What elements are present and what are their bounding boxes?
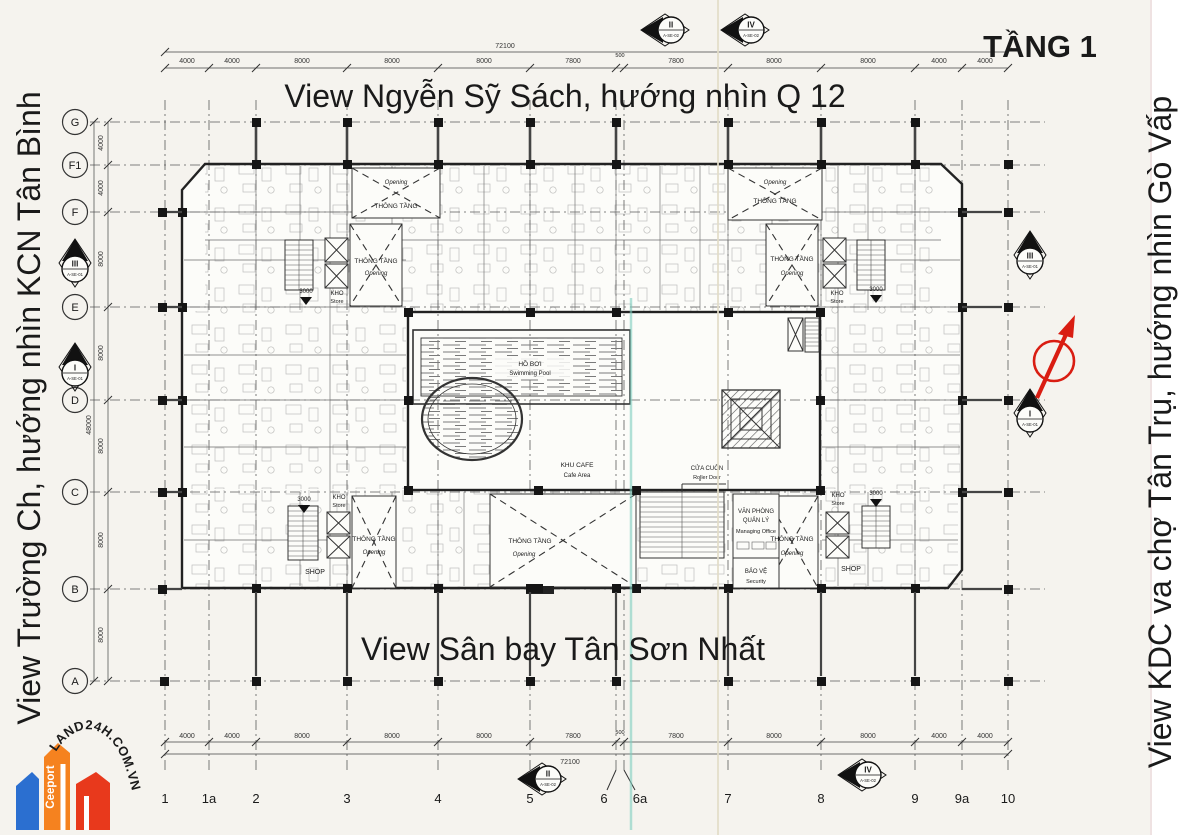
store-label-en: Store — [332, 503, 345, 509]
void-label-en: Opening — [513, 552, 536, 558]
dim-label: 8000 — [98, 345, 105, 361]
office-label-vi2: QUẢN LÝ — [743, 517, 769, 524]
void-label-en: Opening — [385, 180, 408, 186]
dim-label: 8000 — [98, 627, 105, 643]
marker-number: IV — [747, 21, 755, 30]
dim-label: 4000 — [224, 733, 240, 740]
dim-label: 4000 — [179, 733, 195, 740]
marker-code: A-SE-01 — [1022, 264, 1038, 269]
dim-label: 4000 — [977, 733, 993, 740]
grid-row-label: D — [71, 395, 79, 407]
total-width-dim: 72100 — [560, 759, 580, 766]
level-dim-label: 3000 — [869, 491, 883, 497]
annotation-top: View Ngyễn Sỹ Sách, hướng nhìn Q 12 — [284, 78, 845, 114]
cafe-label-en: Cafe Area — [564, 473, 591, 479]
grid-row-label: B — [71, 584, 78, 596]
grid-row-label: F1 — [69, 160, 82, 172]
store-label-en: Store — [330, 299, 343, 305]
logo-red-slot — [84, 796, 89, 830]
marker-number: III — [1027, 252, 1034, 261]
store-label-en: Store — [831, 501, 844, 507]
dim-label: 4000 — [179, 58, 195, 65]
void-label-en: Opening — [764, 180, 787, 186]
marker-code: A-SE-01 — [67, 376, 83, 381]
void-label-en: Opening — [781, 551, 804, 557]
office-label-vi1: VĂN PHÒNG — [738, 508, 774, 515]
grid-col-label: 8 — [817, 791, 824, 806]
marker-number: II — [669, 21, 673, 30]
dim-label: 500 — [615, 730, 624, 736]
dim-label: 4000 — [931, 58, 947, 65]
dim-label: 8000 — [860, 58, 876, 65]
dim-label: 500 — [615, 53, 624, 59]
skylight-feature — [722, 390, 780, 448]
dim-label: 8000 — [384, 733, 400, 740]
grid-col-label: 5 — [526, 791, 533, 806]
security-label-vi: BẢO VỆ — [745, 567, 767, 575]
marker-code: A-SE-02 — [743, 33, 759, 38]
pool-label-en: Swimming Pool — [509, 371, 550, 377]
marker-code: A-SE-01 — [67, 272, 83, 277]
grid-row-label: E — [71, 302, 78, 314]
level-dim-label: 3000 — [297, 497, 311, 503]
marker-code: A-SE-01 — [1022, 422, 1038, 427]
dim-label: 8000 — [476, 733, 492, 740]
dim-label: 8000 — [384, 58, 400, 65]
grid-col-label: 1 — [161, 791, 168, 806]
grid-col-label: 3 — [343, 791, 350, 806]
floor-plan-page: 72100 4000 4000 8000 8000 8000 7800 500 … — [0, 0, 1200, 835]
cafe-label-vi: KHU CAFE — [561, 462, 595, 469]
annotation-bottom: View Sân bay Tân Sơn Nhất — [361, 631, 765, 667]
store-label-vi: KHO — [330, 291, 343, 297]
grid-col-label: 4 — [434, 791, 441, 806]
marker-code: A-SE-02 — [540, 782, 556, 787]
grid-row-label: A — [71, 676, 79, 688]
level-dim-label: 3000 — [869, 287, 883, 293]
dim-label: 8000 — [98, 438, 105, 454]
grid-row-label: F — [72, 207, 79, 219]
marker-number: III — [72, 260, 79, 269]
grid-col-label: 9 — [911, 791, 918, 806]
page-title: TẦNG 1 — [983, 29, 1097, 64]
dim-label: 8000 — [294, 58, 310, 65]
dim-label: 8000 — [476, 58, 492, 65]
shop-label: SHOP — [841, 566, 861, 573]
grid-col-label: 1a — [202, 791, 217, 806]
total-height-dim: 48000 — [86, 415, 93, 435]
grid-col-label: 9a — [955, 791, 970, 806]
floor-plan-drawing: 72100 4000 4000 8000 8000 8000 7800 500 … — [0, 0, 1200, 835]
dim-label: 7800 — [668, 733, 684, 740]
security-label-en: Security — [746, 579, 766, 585]
void-label-en: Opening — [363, 550, 386, 556]
store-label-vi: KHO — [332, 495, 345, 501]
dim-label: 8000 — [766, 733, 782, 740]
dim-label: 8000 — [766, 58, 782, 65]
office-label-en: Managing Office — [736, 529, 776, 535]
grid-col-label: 2 — [252, 791, 259, 806]
dim-label: 8000 — [294, 733, 310, 740]
dim-label: 4000 — [224, 58, 240, 65]
marker-code: A-SE-02 — [663, 33, 679, 38]
annotation-right: View KDC va chợ Tân Trụ, hướng nhìn Gò V… — [1142, 96, 1178, 768]
logo-brand: Ceeport — [45, 765, 57, 809]
dim-label: 8000 — [98, 532, 105, 548]
grid-row-label: C — [71, 487, 79, 499]
dim-label: 8000 — [860, 733, 876, 740]
dim-label: 8000 — [98, 251, 105, 267]
annotation-left: View Trường Ch, hướng nhìn KCN Tân Bình — [11, 91, 47, 724]
grid-row-label: G — [71, 117, 80, 129]
level-dim-label: 3000 — [299, 289, 313, 295]
grid-col-label: 6 — [600, 791, 607, 806]
marker-code: A-SE-02 — [860, 778, 876, 783]
marker-number: IV — [864, 766, 872, 775]
marker-number: I — [74, 364, 76, 373]
marker-number: II — [546, 770, 550, 779]
dim-label: 7800 — [668, 58, 684, 65]
void-label-en: Opening — [781, 271, 804, 277]
marker-number: I — [1029, 410, 1031, 419]
dim-label: 4000 — [98, 135, 105, 151]
dim-label: 4000 — [931, 733, 947, 740]
dim-label: 7800 — [565, 733, 581, 740]
void-label-en: Opening — [365, 271, 388, 277]
dim-label: 4000 — [98, 180, 105, 196]
logo-orange-slot — [61, 764, 66, 830]
store-label-vi: KHO — [830, 291, 843, 297]
grid-col-label: 6a — [633, 791, 648, 806]
store-label-en: Store — [830, 299, 843, 305]
total-width-dim: 72100 — [495, 43, 515, 50]
dim-label: 7800 — [565, 58, 581, 65]
roller-door-label-en: Roller Door — [693, 475, 721, 481]
shop-label: SHOP — [305, 569, 325, 576]
store-label-vi: KHO — [831, 493, 844, 499]
grid-col-label: 7 — [724, 791, 731, 806]
grid-col-label: 10 — [1001, 791, 1015, 806]
